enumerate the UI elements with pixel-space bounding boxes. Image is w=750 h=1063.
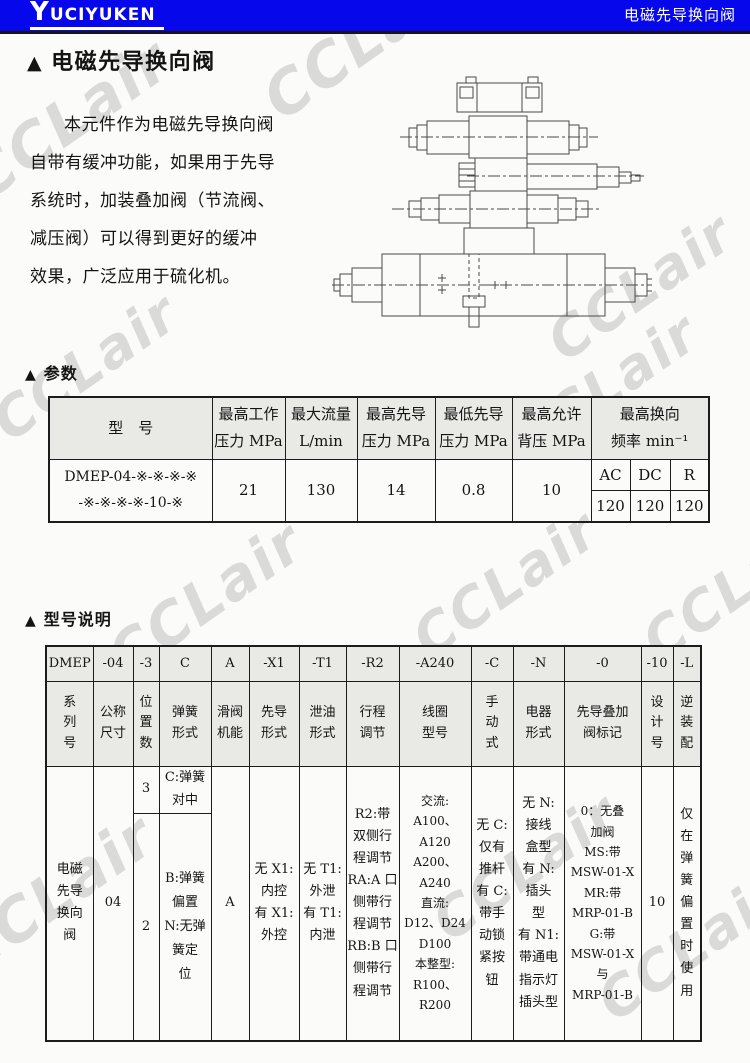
model-code-row: DMEP -04 -3 C A -X1 -T1 -R2 -A240 -C -N … [46,646,701,681]
valve-technical-drawing [332,72,652,334]
body-manual: 无 C: 仅有 推杆 有 C: 带手 动锁 紧按 钮 [471,766,513,1041]
code-size: -04 [93,646,133,681]
label-spool: 滑阀 机能 [211,681,249,766]
cell-freq-value-dc: 120 [630,490,670,522]
col-max-switch-frequency: 最高换向 频率 min⁻¹ [591,397,709,459]
label-stroke: 行程 调节 [346,681,399,766]
parameters-table: 型 号 最高工作 压力 MPa 最大流量 L/min 最高先导 压力 MPa 最… [48,396,710,523]
section-params-label: 参数 [44,364,78,383]
col-max-pilot-pressure: 最高先导 压力 MPa [357,397,435,459]
label-coil: 线圈 型号 [399,681,471,766]
cell-model-code: DMEP-04-※-※-※-※ -※-※-※-※-10-※ [49,459,212,522]
col-min-pilot-pressure: 最低先导 压力 MPa [435,397,512,459]
cell-freq-value-ac: 120 [591,490,630,522]
model-code-table: DMEP -04 -3 C A -X1 -T1 -R2 -A240 -C -N … [45,645,702,1042]
body-spool: A [211,766,249,1041]
label-electrical: 电器 形式 [513,681,564,766]
code-spool: A [211,646,249,681]
body-stack: 0：无叠 加阀 MS:带 MSW-01-X MR:带 MRP-01-B G:带 … [564,766,641,1041]
section-model-label: 型号说明 [44,610,112,629]
triangle-marker-icon: ▲ [25,367,37,383]
body-drain: 无 T1: 外泄 有 T1: 内泄 [299,766,346,1041]
body-positions-2: 2 [133,813,159,1041]
params-data-row: DMEP-04-※-※-※-※ -※-※-※-※-10-※ 21 130 14 … [49,459,709,490]
col-max-flow: 最大流量 L/min [285,397,357,459]
model-body-row-top: 电磁 先导 换向 阀 04 3 C:弹簧 对中 A 无 X1: 内控 有 X1:… [46,766,701,813]
body-positions-3: 3 [133,766,159,813]
col-model: 型 号 [49,397,212,459]
col-max-working-pressure: 最高工作 压力 MPa [212,397,285,459]
label-stack: 先导叠加 阀标记 [564,681,641,766]
intro-paragraph: 本元件作为电磁先导换向阀 自带有缓冲功能，如果用于先导 系统时，加装叠加阀（节流… [30,106,335,296]
body-series: 电磁 先导 换向 阀 [46,766,93,1041]
page-title: ▲电磁先导换向阀 [27,44,216,76]
label-series: 系 列 号 [46,681,93,766]
section-params-heading: ▲参数 [25,360,78,384]
label-positions: 位 置 数 [133,681,159,766]
code-design: -10 [641,646,673,681]
body-reverse: 仅 在 弹 簧 偏 置 时 使 用 [673,766,701,1041]
code-pilot: -X1 [249,646,299,681]
code-stack: -0 [564,646,641,681]
body-stroke: R2:带 双侧行 程调节 RA:A 口 侧带行 程调节 RB:B 口 侧带行 程… [346,766,399,1041]
code-series: DMEP [46,646,93,681]
code-drain: -T1 [299,646,346,681]
code-reverse: -L [673,646,701,681]
label-size: 公称 尺寸 [93,681,133,766]
label-drain: 泄油 形式 [299,681,346,766]
model-label-row: 系 列 号 公称 尺寸 位 置 数 弹簧 形式 滑阀 机能 先导 形式 泄油 形… [46,681,701,766]
triangle-marker-icon: ▲ [25,613,37,629]
cell-freq-type-dc: DC [630,459,670,490]
cell-freq-value-r: 120 [670,490,709,522]
body-coil: 交流: A100、A120 A200、A240 直流: D12、D24 D100… [399,766,471,1041]
label-manual: 手 动 式 [471,681,513,766]
params-header-row: 型 号 最高工作 压力 MPa 最大流量 L/min 最高先导 压力 MPa 最… [49,397,709,459]
code-spring: C [159,646,211,681]
cell-freq-type-r: R [670,459,709,490]
label-pilot: 先导 形式 [249,681,299,766]
col-max-back-pressure: 最高允许 背压 MPa [512,397,591,459]
code-coil: -A240 [399,646,471,681]
body-electrical: 无 N: 接线 盒型 有 N: 插头 型 有 N1: 带通电 指示灯 插头型 [513,766,564,1041]
cell-max-back-pressure: 10 [512,459,591,522]
label-reverse: 逆 装 配 [673,681,701,766]
label-spring: 弹簧 形式 [159,681,211,766]
cell-freq-type-ac: AC [591,459,630,490]
code-manual: -C [471,646,513,681]
body-size: 04 [93,766,133,1041]
body-spring-centered: C:弹簧 对中 [159,766,211,813]
code-electrical: -N [513,646,564,681]
brand-logo: YUCIYUKEN [30,0,164,30]
code-stroke: -R2 [346,646,399,681]
body-design: 10 [641,766,673,1041]
body-spring-offset: B:弹簧 偏置 N:无弹 簧定 位 [159,813,211,1041]
header-product-title: 电磁先导换向阀 [624,4,736,25]
body-pilot: 无 X1: 内控 有 X1: 外控 [249,766,299,1041]
code-positions: -3 [133,646,159,681]
cell-max-working-pressure: 21 [212,459,285,522]
header-bar: YUCIYUKEN 电磁先导换向阀 [0,0,750,34]
section-model-heading: ▲型号说明 [25,606,112,630]
triangle-marker-icon: ▲ [27,52,43,74]
cell-max-pilot-pressure: 14 [357,459,435,522]
label-design: 设 计 号 [641,681,673,766]
cell-max-flow: 130 [285,459,357,522]
cell-min-pilot-pressure: 0.8 [435,459,512,522]
page-title-text: 电磁先导换向阀 [51,49,216,75]
